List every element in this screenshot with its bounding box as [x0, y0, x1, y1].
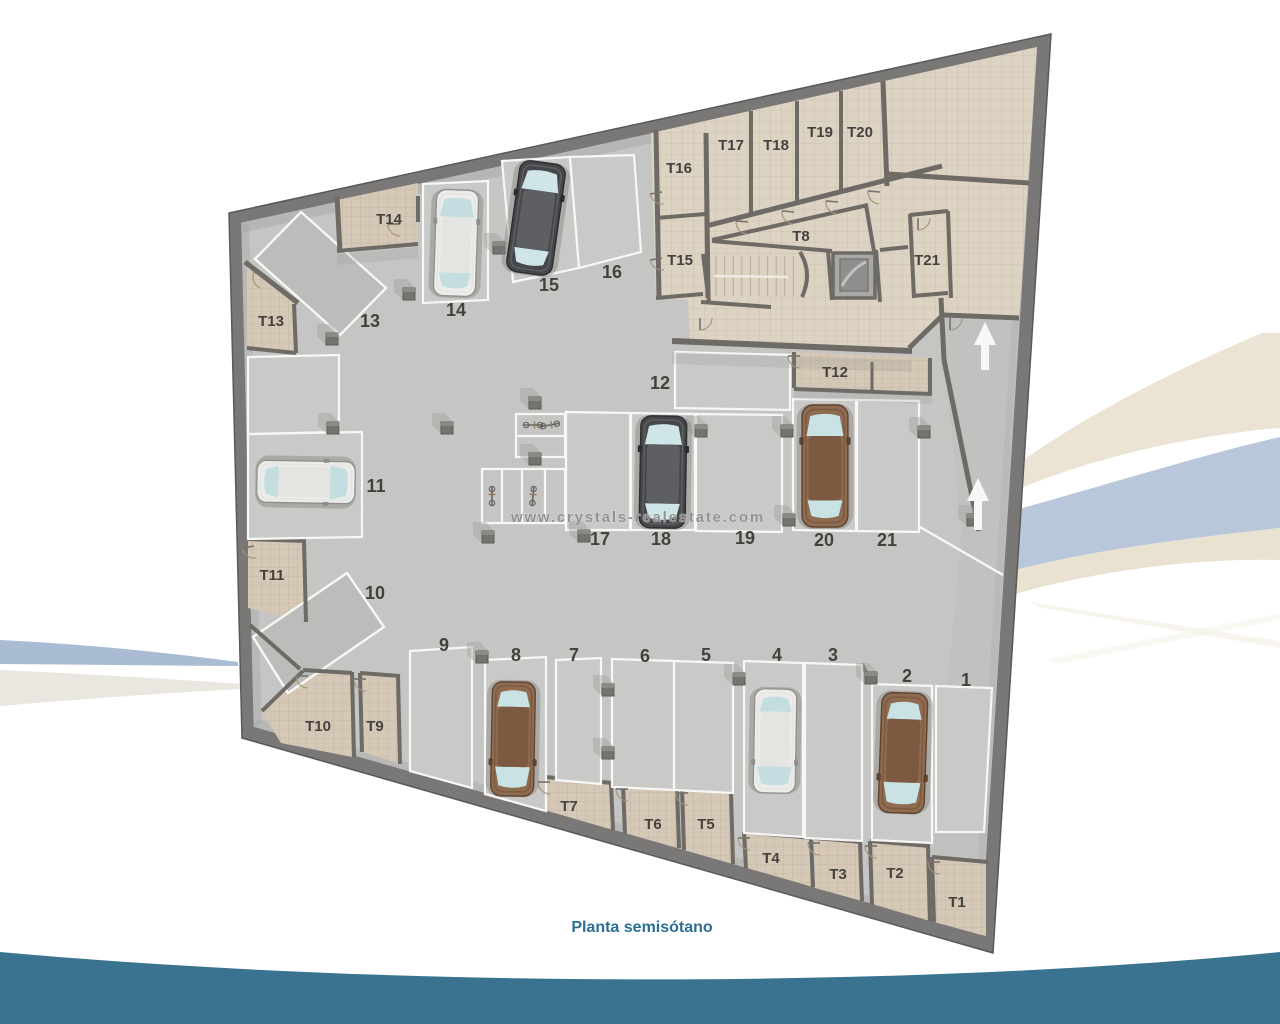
- svg-text:7: 7: [569, 645, 579, 665]
- svg-text:T2: T2: [886, 865, 904, 882]
- svg-text:T15: T15: [667, 252, 693, 269]
- svg-text:T7: T7: [560, 798, 578, 815]
- svg-text:T4: T4: [762, 850, 780, 867]
- svg-text:T12: T12: [822, 364, 848, 381]
- svg-text:15: 15: [539, 275, 559, 295]
- svg-text:17: 17: [590, 529, 610, 549]
- svg-text:T6: T6: [644, 816, 662, 833]
- svg-text:6: 6: [640, 646, 650, 666]
- svg-text:T21: T21: [914, 252, 940, 269]
- svg-text:T19: T19: [807, 124, 833, 141]
- svg-text:T13: T13: [258, 313, 284, 330]
- svg-text:Planta semisótano: Planta semisótano: [571, 919, 713, 936]
- svg-text:3: 3: [828, 645, 838, 665]
- svg-text:T20: T20: [847, 124, 873, 141]
- svg-text:16: 16: [602, 262, 622, 282]
- svg-text:8: 8: [511, 645, 521, 665]
- svg-text:9: 9: [439, 635, 449, 655]
- svg-text:11: 11: [366, 476, 385, 496]
- svg-text:T17: T17: [718, 137, 744, 154]
- svg-text:4: 4: [772, 645, 782, 665]
- svg-text:T9: T9: [366, 718, 384, 735]
- svg-text:T10: T10: [305, 718, 331, 735]
- svg-text:21: 21: [877, 530, 897, 550]
- svg-text:T14: T14: [376, 211, 403, 228]
- svg-text:T5: T5: [697, 816, 715, 833]
- svg-text:19: 19: [735, 528, 755, 548]
- svg-text:T16: T16: [666, 160, 692, 177]
- svg-text:13: 13: [360, 311, 380, 331]
- svg-text:www.crystals-realestate.com: www.crystals-realestate.com: [510, 509, 765, 526]
- svg-text:2: 2: [902, 666, 912, 686]
- svg-text:T11: T11: [259, 567, 284, 584]
- svg-text:5: 5: [701, 645, 711, 665]
- svg-text:1: 1: [961, 670, 971, 690]
- svg-text:T3: T3: [829, 866, 847, 883]
- svg-text:12: 12: [650, 373, 670, 393]
- svg-text:T18: T18: [763, 137, 789, 154]
- svg-text:18: 18: [651, 529, 671, 549]
- svg-text:T8: T8: [792, 228, 810, 245]
- svg-text:14: 14: [446, 300, 466, 320]
- svg-text:T1: T1: [948, 894, 966, 911]
- svg-text:20: 20: [814, 530, 834, 550]
- svg-text:10: 10: [365, 583, 385, 603]
